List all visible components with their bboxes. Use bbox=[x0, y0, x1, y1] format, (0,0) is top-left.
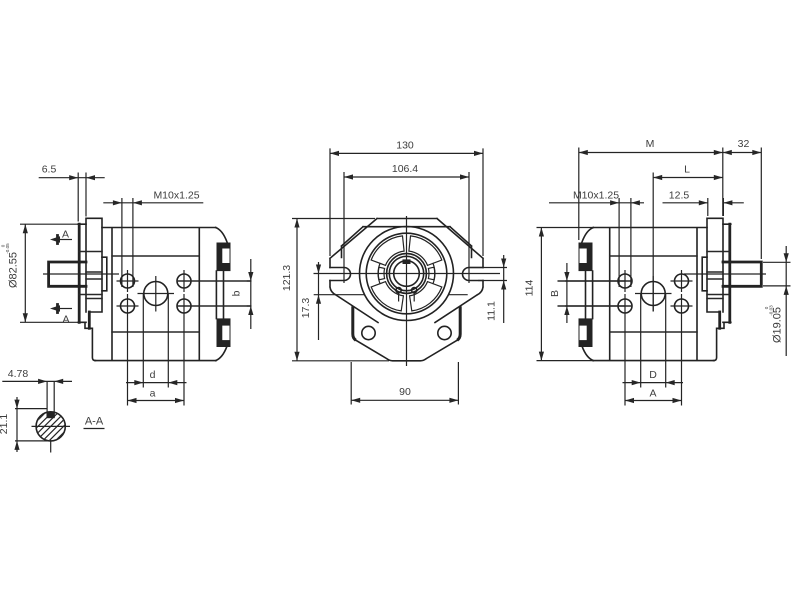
svg-text:b: b bbox=[231, 290, 243, 296]
svg-text:17.3: 17.3 bbox=[300, 298, 312, 319]
svg-text:106.4: 106.4 bbox=[392, 163, 418, 175]
svg-text:a: a bbox=[150, 388, 156, 400]
svg-text:21.1: 21.1 bbox=[0, 414, 10, 435]
svg-text:A: A bbox=[62, 314, 69, 326]
svg-text:32: 32 bbox=[738, 138, 750, 150]
svg-text:121.3: 121.3 bbox=[281, 265, 293, 291]
svg-text:6.5: 6.5 bbox=[42, 164, 57, 176]
svg-text:130: 130 bbox=[396, 140, 414, 152]
svg-text:-0.03: -0.03 bbox=[769, 305, 774, 316]
svg-text:d: d bbox=[150, 369, 156, 381]
svg-text:M10x1.25: M10x1.25 bbox=[153, 190, 199, 202]
svg-text:L: L bbox=[684, 164, 690, 176]
svg-text:Ø82.55: Ø82.55 bbox=[8, 252, 20, 288]
svg-text:A: A bbox=[649, 388, 656, 400]
svg-text:M10x1.25: M10x1.25 bbox=[573, 190, 619, 202]
svg-text:90: 90 bbox=[399, 386, 411, 398]
svg-text:-0.05: -0.05 bbox=[5, 243, 10, 254]
svg-text:11.1: 11.1 bbox=[486, 301, 498, 321]
svg-text:D: D bbox=[649, 369, 657, 381]
svg-text:B: B bbox=[549, 290, 561, 297]
svg-text:114: 114 bbox=[523, 279, 535, 296]
svg-text:12.5: 12.5 bbox=[669, 190, 690, 202]
svg-text:M: M bbox=[646, 138, 655, 150]
svg-text:4.78: 4.78 bbox=[8, 368, 29, 380]
svg-text:A: A bbox=[62, 229, 69, 241]
svg-text:A-A: A-A bbox=[85, 416, 104, 428]
